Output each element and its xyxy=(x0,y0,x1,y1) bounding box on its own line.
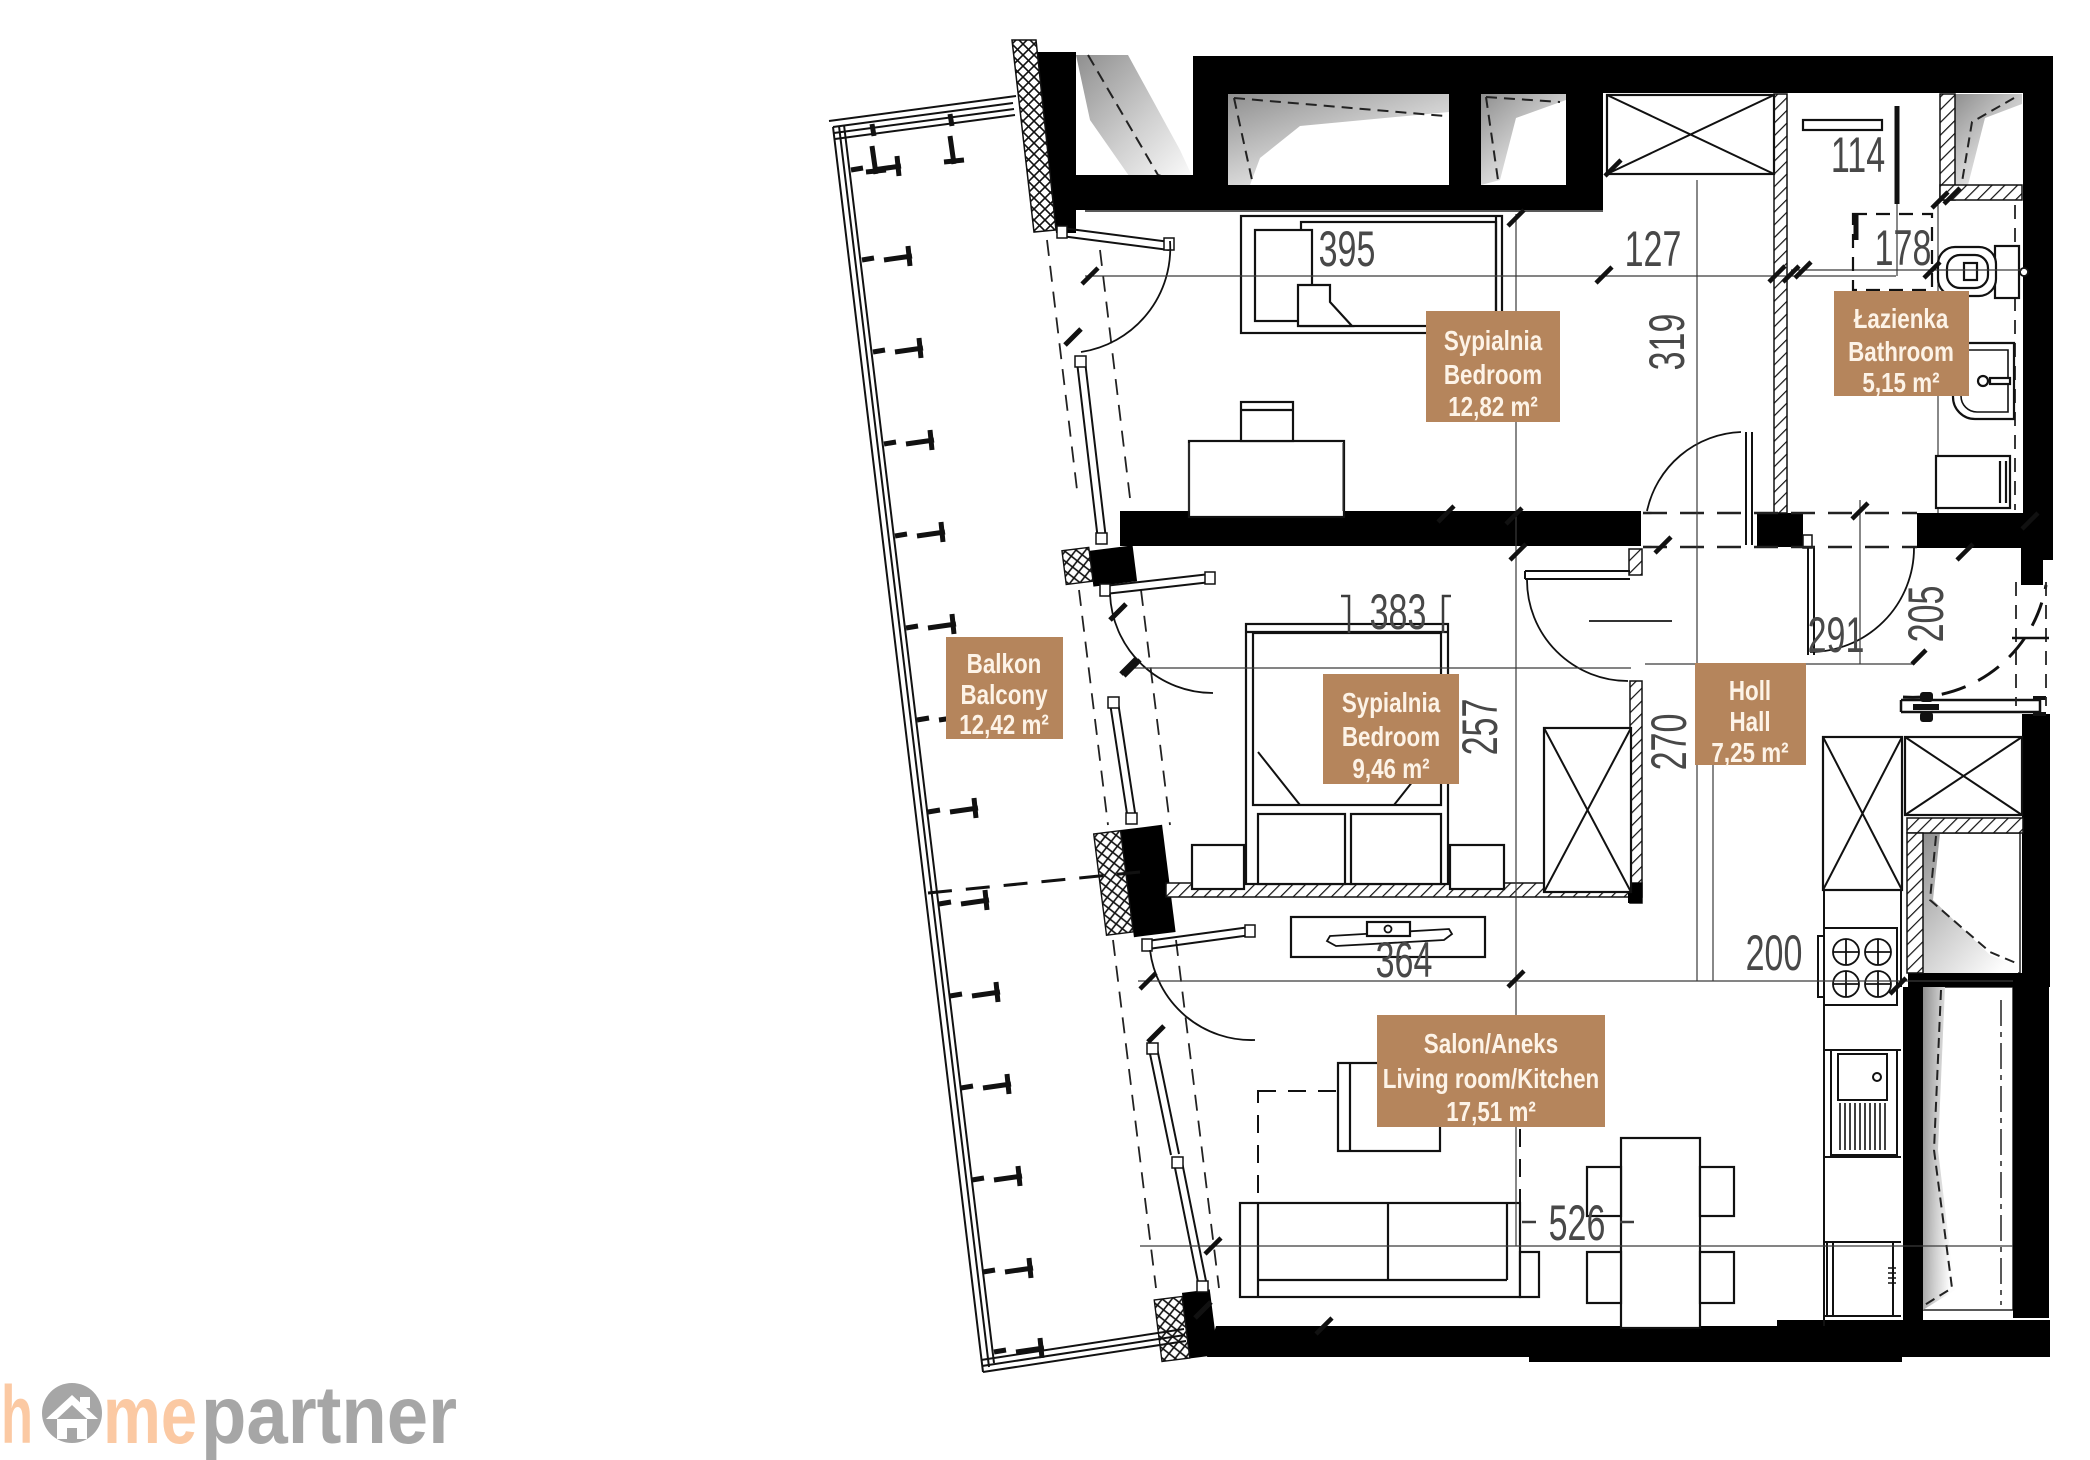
svg-text:114: 114 xyxy=(1831,128,1885,184)
svg-text:395: 395 xyxy=(1319,222,1376,278)
svg-text:Bathroom: Bathroom xyxy=(1848,337,1954,368)
svg-text:Balcony: Balcony xyxy=(960,680,1047,711)
svg-text:257: 257 xyxy=(1453,699,1509,756)
svg-text:127: 127 xyxy=(1625,222,1682,278)
svg-text:Salon/Aneks: Salon/Aneks xyxy=(1424,1029,1558,1060)
svg-text:526: 526 xyxy=(1549,1196,1606,1252)
svg-text:h: h xyxy=(1,1370,33,1460)
svg-text:5,15 m²: 5,15 m² xyxy=(1862,368,1939,399)
svg-text:me: me xyxy=(103,1370,197,1460)
svg-text:7,25 m²: 7,25 m² xyxy=(1711,738,1788,769)
svg-text:Hall: Hall xyxy=(1729,707,1770,738)
svg-text:Balkon: Balkon xyxy=(967,649,1042,680)
svg-text:178: 178 xyxy=(1875,221,1932,277)
svg-text:Bedroom: Bedroom xyxy=(1342,722,1440,753)
svg-text:319: 319 xyxy=(1640,314,1696,371)
svg-text:Living room/Kitchen: Living room/Kitchen xyxy=(1383,1064,1599,1095)
svg-text:Łazienka: Łazienka xyxy=(1854,304,1949,335)
svg-text:12,82 m²: 12,82 m² xyxy=(1448,392,1538,423)
svg-text:17,51 m²: 17,51 m² xyxy=(1446,1097,1536,1128)
svg-text:270: 270 xyxy=(1642,714,1698,771)
svg-text:Sypialnia: Sypialnia xyxy=(1444,326,1543,357)
svg-text:364: 364 xyxy=(1376,933,1433,989)
svg-text:Holl: Holl xyxy=(1729,676,1771,707)
svg-text:383: 383 xyxy=(1370,585,1427,641)
svg-text:Bedroom: Bedroom xyxy=(1444,360,1542,391)
svg-text:partner: partner xyxy=(201,1370,457,1460)
svg-text:200: 200 xyxy=(1746,926,1803,982)
svg-text:9,46 m²: 9,46 m² xyxy=(1352,754,1429,785)
svg-text:205: 205 xyxy=(1899,586,1955,643)
svg-text:291: 291 xyxy=(1808,608,1865,664)
svg-text:12,42 m²: 12,42 m² xyxy=(959,710,1049,741)
svg-text:Sypialnia: Sypialnia xyxy=(1342,688,1441,719)
